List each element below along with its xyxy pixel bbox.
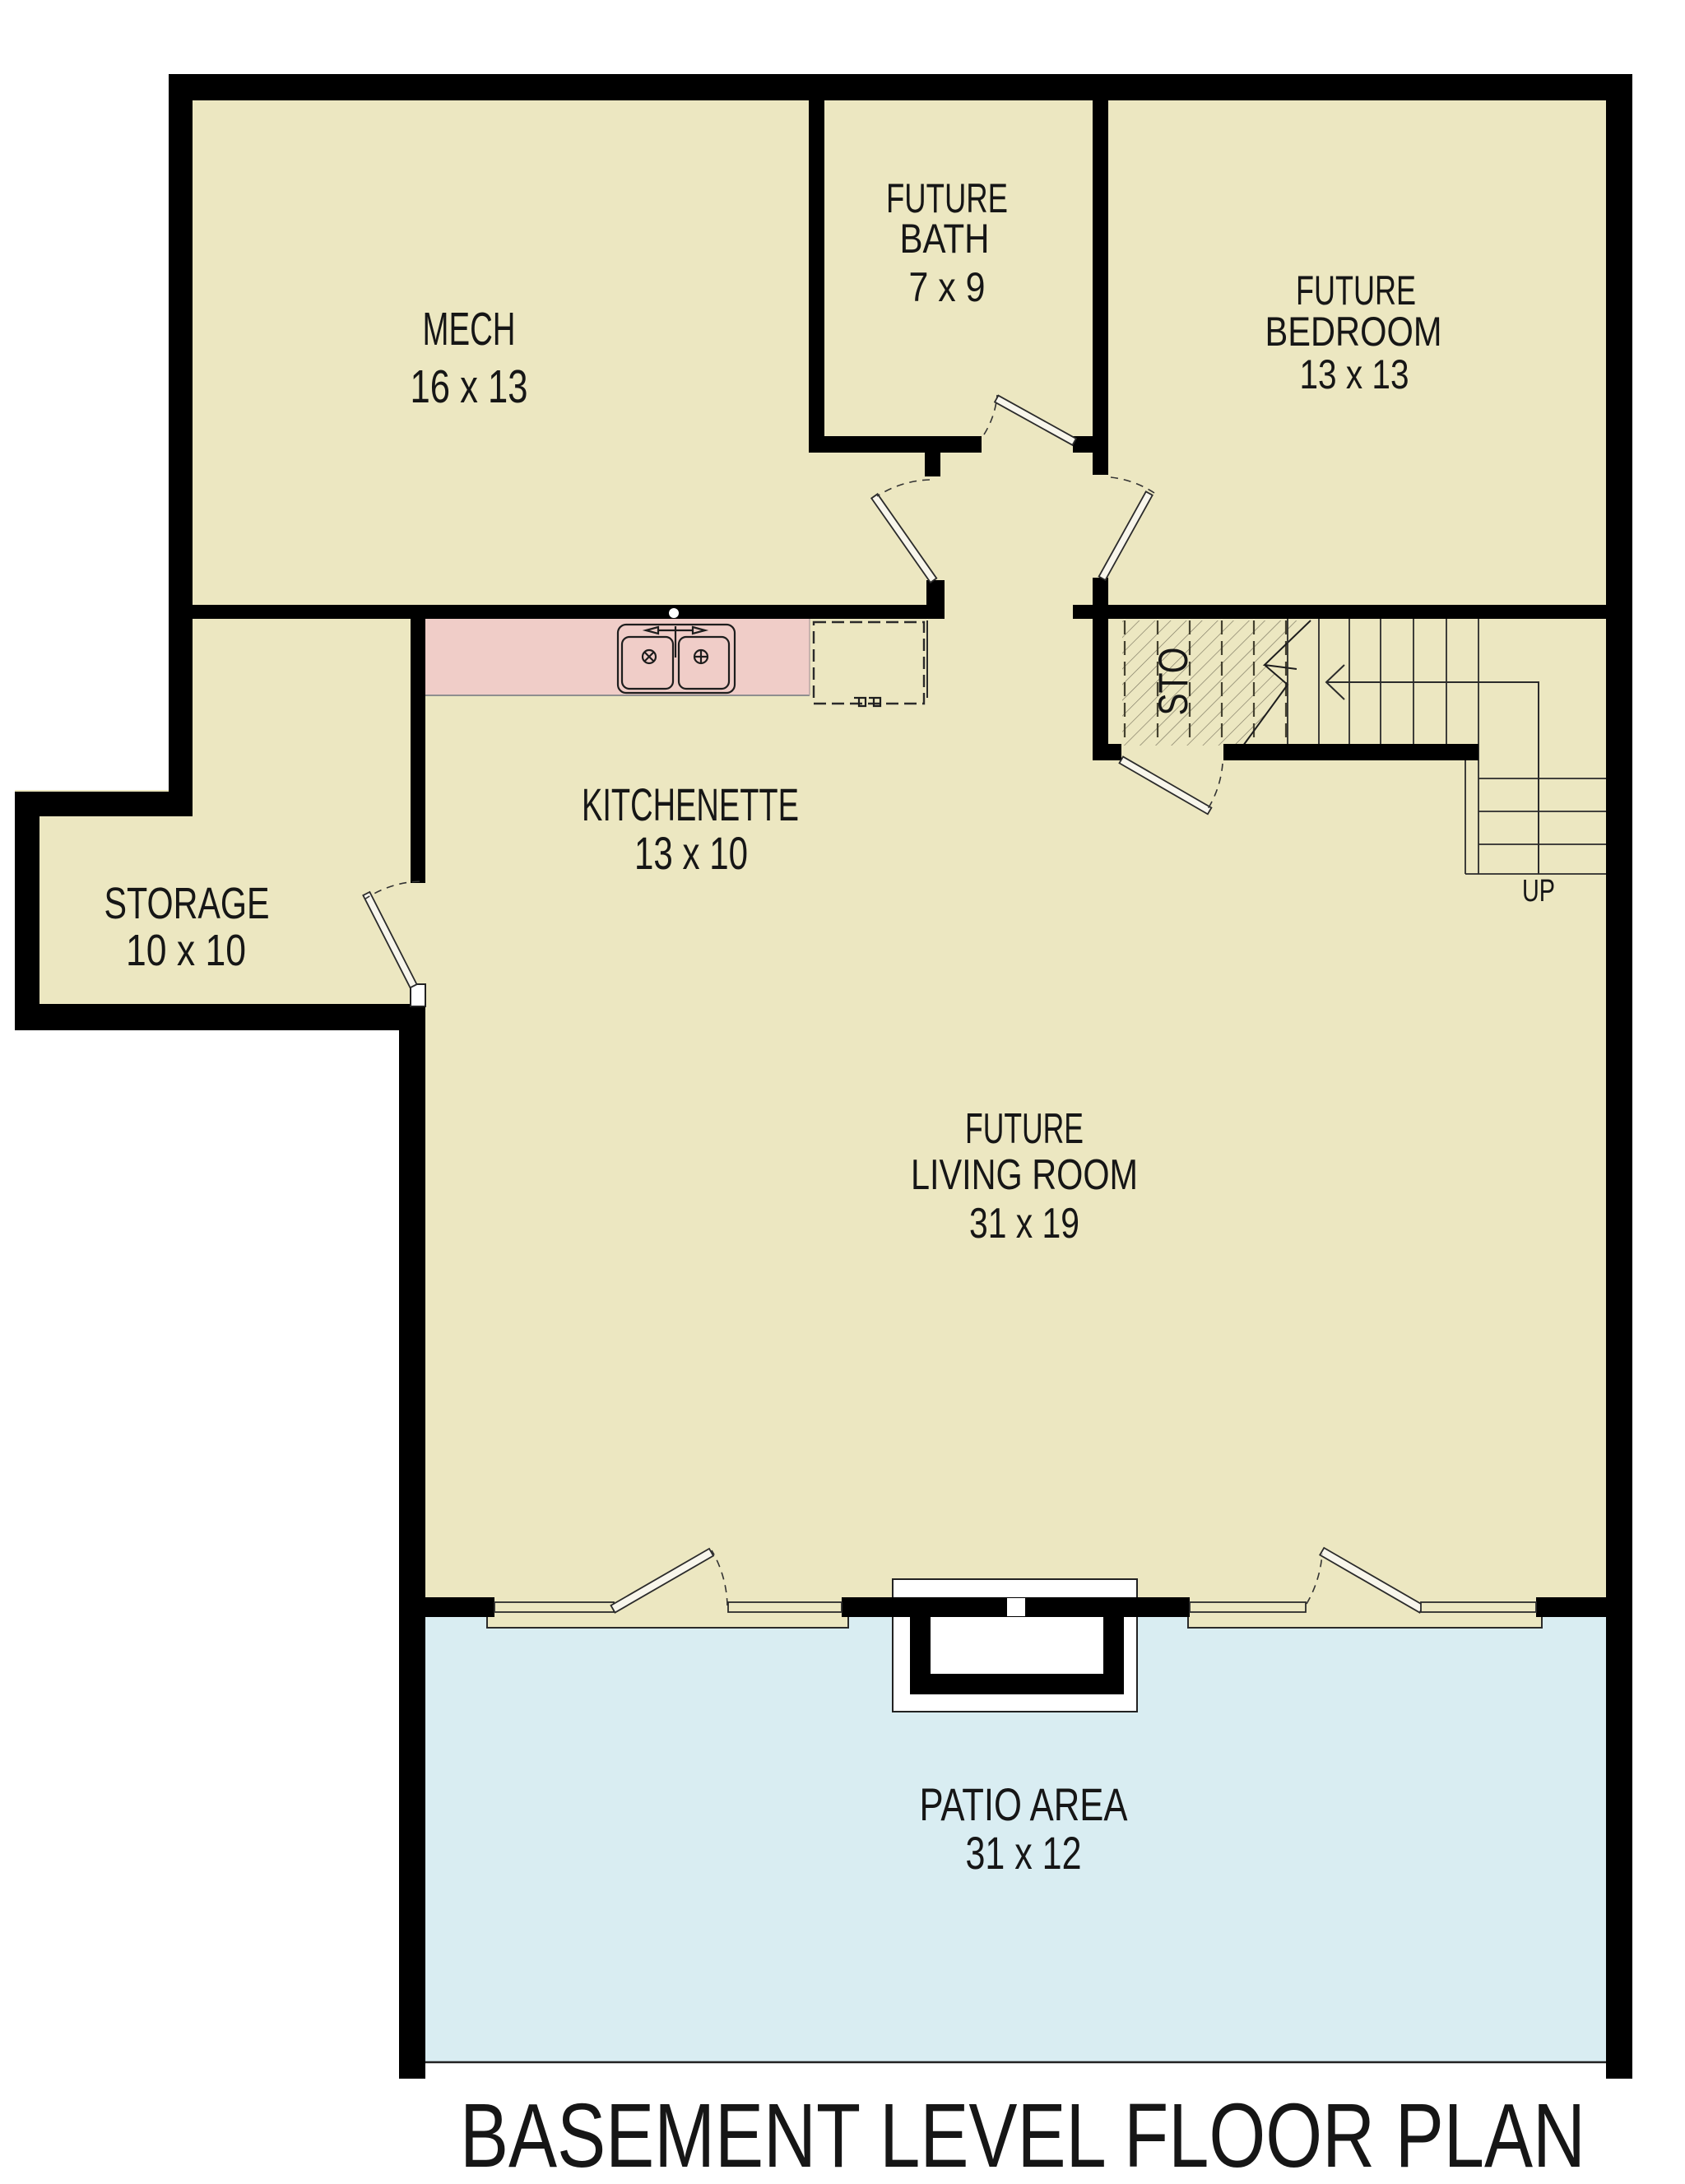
- svg-text:31 x 12: 31 x 12: [966, 1827, 1082, 1879]
- svg-text:7 x 9: 7 x 9: [909, 264, 986, 310]
- svg-text:STORAGE: STORAGE: [104, 879, 270, 928]
- svg-text:PATIO AREA: PATIO AREA: [920, 1778, 1128, 1830]
- svg-text:FUTURE: FUTURE: [1296, 267, 1416, 314]
- svg-text:UP: UP: [1522, 874, 1555, 908]
- svg-text:13 x 10: 13 x 10: [634, 827, 748, 879]
- svg-text:MECH: MECH: [423, 303, 516, 355]
- svg-text:FUTURE: FUTURE: [965, 1105, 1084, 1153]
- svg-text:16 x 13: 16 x 13: [411, 360, 528, 413]
- svg-text:BASEMENT LEVEL FLOOR PLAN: BASEMENT LEVEL FLOOR PLAN: [460, 2085, 1585, 2184]
- svg-text:FUTURE: FUTURE: [886, 175, 1008, 221]
- svg-text:KITCHENETTE: KITCHENETTE: [582, 778, 799, 830]
- svg-text:31 x 19: 31 x 19: [969, 1200, 1079, 1248]
- svg-text:LIVING ROOM: LIVING ROOM: [911, 1151, 1138, 1199]
- svg-text:BEDROOM: BEDROOM: [1265, 309, 1442, 355]
- svg-text:BATH: BATH: [900, 216, 990, 262]
- svg-text:STO: STO: [1150, 648, 1196, 716]
- svg-text:10 x 10: 10 x 10: [126, 926, 246, 975]
- svg-text:13 x 13: 13 x 13: [1300, 351, 1409, 397]
